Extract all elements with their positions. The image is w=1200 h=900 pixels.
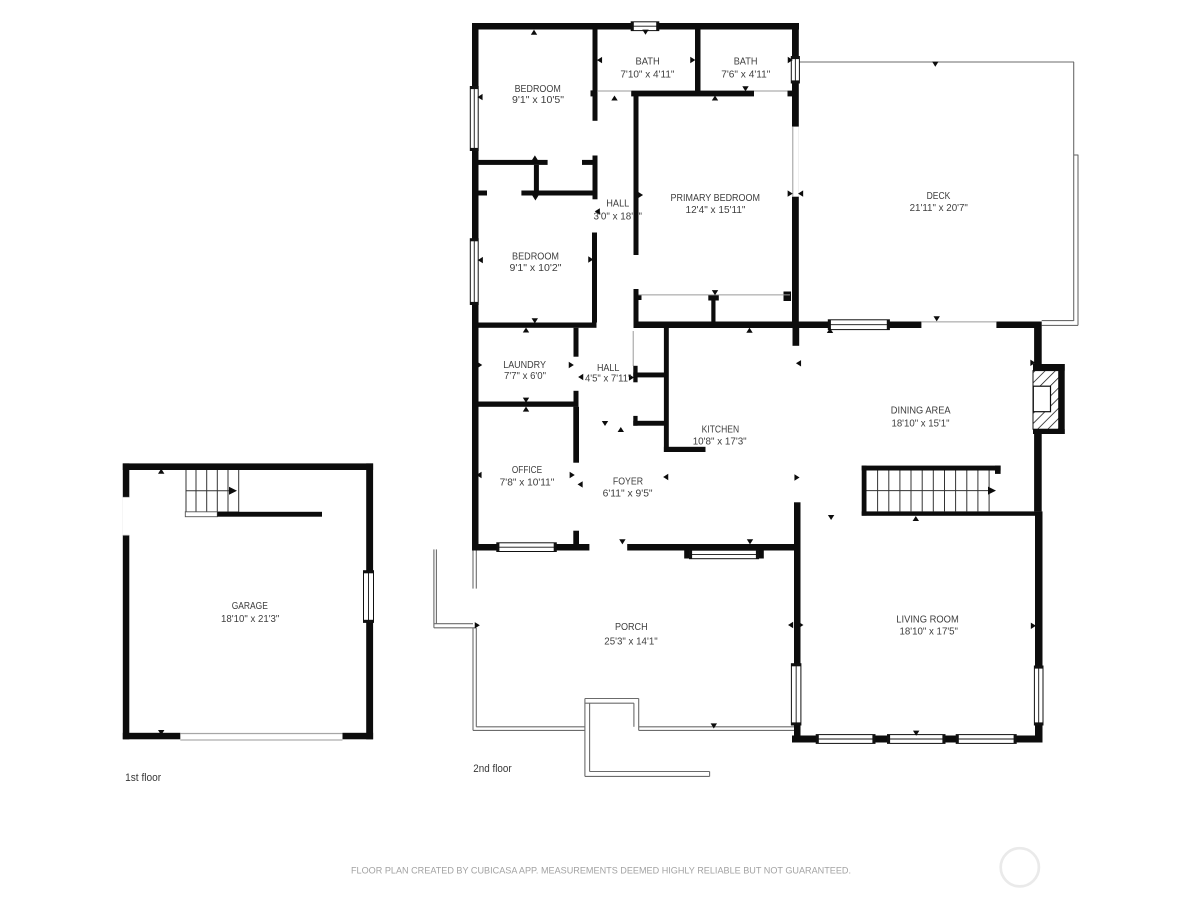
svg-text:DINING AREA: DINING AREA bbox=[891, 406, 951, 417]
svg-text:BEDROOM: BEDROOM bbox=[515, 84, 561, 95]
svg-text:PORCH: PORCH bbox=[615, 622, 648, 633]
svg-text:LAUNDRY: LAUNDRY bbox=[503, 360, 546, 371]
svg-text:HALL: HALL bbox=[606, 198, 629, 209]
svg-text:21'11" x 20'7": 21'11" x 20'7" bbox=[910, 203, 969, 214]
svg-text:7'7" x 6'0": 7'7" x 6'0" bbox=[504, 371, 546, 382]
svg-text:BATH: BATH bbox=[635, 57, 659, 68]
svg-text:KITCHEN: KITCHEN bbox=[702, 425, 740, 436]
svg-text:9'1" x 10'2": 9'1" x 10'2" bbox=[510, 263, 562, 274]
svg-text:DECK: DECK bbox=[927, 191, 951, 202]
svg-text:FLOOR PLAN CREATED BY CUBICASA: FLOOR PLAN CREATED BY CUBICASA APP. MEAS… bbox=[351, 866, 851, 876]
svg-text:2nd floor: 2nd floor bbox=[473, 763, 512, 775]
svg-text:4'5" x 7'11": 4'5" x 7'11" bbox=[585, 374, 632, 385]
svg-text:18'10" x 15'1": 18'10" x 15'1" bbox=[892, 419, 950, 430]
svg-text:6'11" x 9'5": 6'11" x 9'5" bbox=[603, 489, 653, 500]
svg-text:GARAGE: GARAGE bbox=[232, 601, 268, 612]
svg-text:BEDROOM: BEDROOM bbox=[512, 252, 559, 263]
svg-text:PRIMARY BEDROOM: PRIMARY BEDROOM bbox=[671, 193, 761, 204]
svg-text:FOYER: FOYER bbox=[613, 476, 643, 487]
svg-text:12'4" x 15'11": 12'4" x 15'11" bbox=[686, 205, 746, 216]
svg-text:10'8" x 17'3": 10'8" x 17'3" bbox=[693, 437, 747, 448]
svg-text:18'10" x 17'5": 18'10" x 17'5" bbox=[900, 626, 959, 637]
svg-text:9'1" x 10'5": 9'1" x 10'5" bbox=[512, 95, 564, 106]
svg-text:18'10" x 21'3": 18'10" x 21'3" bbox=[221, 614, 280, 625]
svg-text:7'8" x 10'11": 7'8" x 10'11" bbox=[500, 477, 555, 488]
svg-text:1st floor: 1st floor bbox=[125, 772, 161, 784]
svg-text:LIVING ROOM: LIVING ROOM bbox=[896, 615, 959, 626]
svg-text:BATH: BATH bbox=[734, 57, 758, 68]
svg-text:25'3" x 14'1": 25'3" x 14'1" bbox=[604, 637, 658, 648]
svg-text:HALL: HALL bbox=[597, 363, 620, 374]
svg-text:OFFICE: OFFICE bbox=[512, 465, 542, 476]
svg-text:7'10" x 4'11": 7'10" x 4'11" bbox=[620, 70, 674, 81]
svg-text:7'6" x 4'11": 7'6" x 4'11" bbox=[721, 70, 771, 81]
